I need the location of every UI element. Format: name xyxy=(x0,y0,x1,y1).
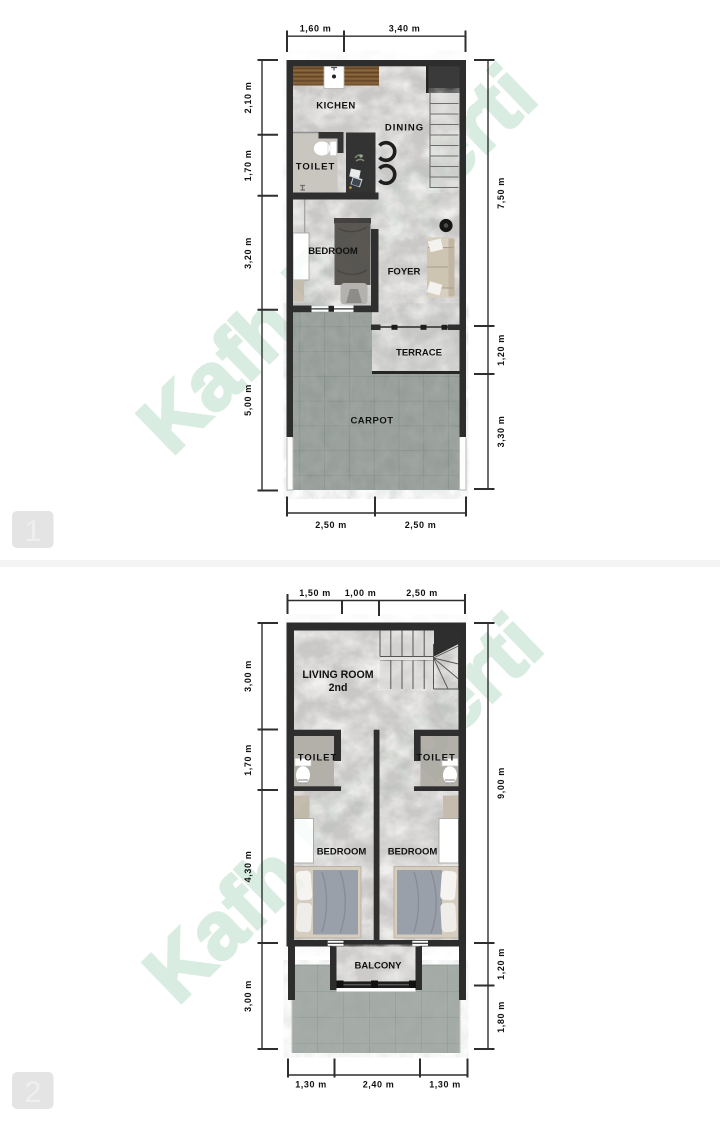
svg-text:3,40 m: 3,40 m xyxy=(389,24,421,34)
svg-text:1,30 m: 1,30 m xyxy=(429,1080,461,1090)
svg-text:1: 1 xyxy=(25,515,42,548)
svg-text:CARPOT: CARPOT xyxy=(350,416,393,427)
svg-text:3,30 m: 3,30 m xyxy=(496,416,506,448)
svg-text:9,00 m: 9,00 m xyxy=(496,767,506,799)
svg-text:BALCONY: BALCONY xyxy=(355,961,403,972)
svg-text:LIVING ROOM: LIVING ROOM xyxy=(302,669,373,681)
svg-text:2: 2 xyxy=(25,1076,42,1109)
svg-text:1,00 m: 1,00 m xyxy=(345,588,377,598)
svg-text:TERRACE: TERRACE xyxy=(396,348,442,359)
svg-text:2nd: 2nd xyxy=(329,682,348,694)
svg-text:2,50 m: 2,50 m xyxy=(405,520,437,530)
svg-text:2,40 m: 2,40 m xyxy=(363,1080,395,1090)
svg-text:TOILET: TOILET xyxy=(296,162,336,173)
svg-text:1,60 m: 1,60 m xyxy=(300,24,332,34)
svg-text:2,50 m: 2,50 m xyxy=(406,588,438,598)
svg-text:2,10 m: 2,10 m xyxy=(243,82,253,114)
svg-text:KICHEN: KICHEN xyxy=(316,101,355,112)
svg-text:3,20 m: 3,20 m xyxy=(243,237,253,269)
svg-text:7,50 m: 7,50 m xyxy=(496,177,506,209)
svg-text:3,00 m: 3,00 m xyxy=(243,660,253,692)
svg-text:3,00 m: 3,00 m xyxy=(243,980,253,1012)
svg-text:1,20 m: 1,20 m xyxy=(496,948,506,980)
svg-text:1,70 m: 1,70 m xyxy=(243,744,253,776)
svg-text:1,70 m: 1,70 m xyxy=(243,150,253,182)
svg-text:2,50 m: 2,50 m xyxy=(315,520,347,530)
svg-text:BEDROOM: BEDROOM xyxy=(388,847,438,858)
svg-text:1,80 m: 1,80 m xyxy=(496,1001,506,1033)
svg-text:1,20 m: 1,20 m xyxy=(496,334,506,366)
svg-text:1,50 m: 1,50 m xyxy=(299,588,331,598)
svg-text:1,30 m: 1,30 m xyxy=(295,1080,327,1090)
